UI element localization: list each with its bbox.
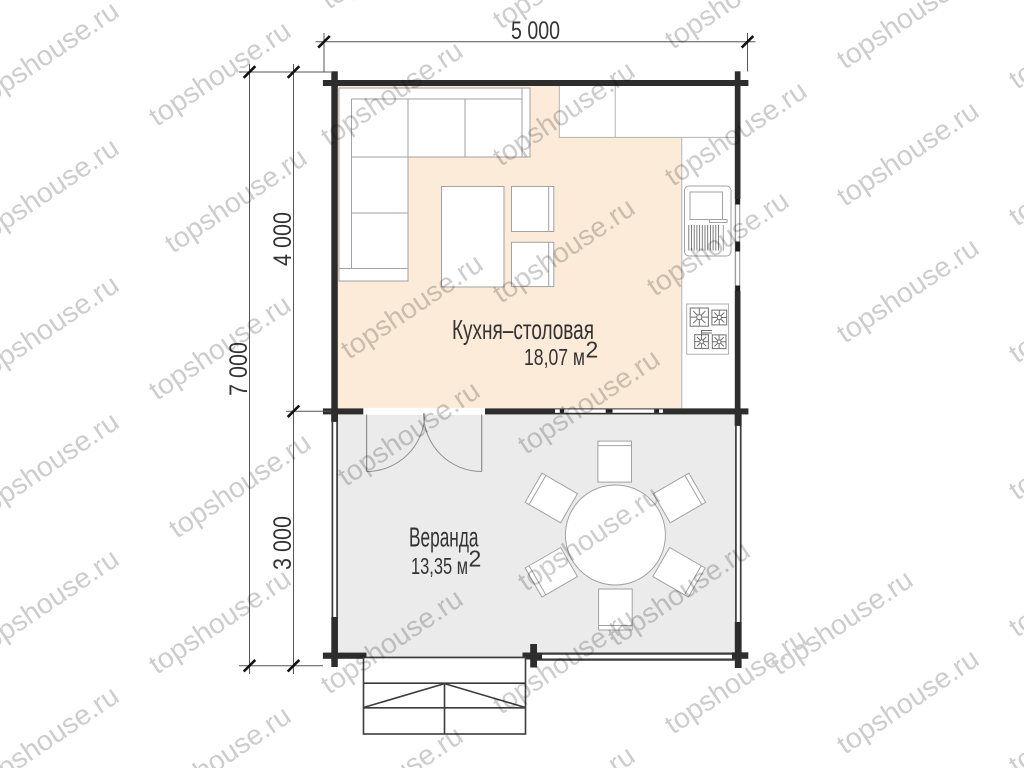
svg-text:13,35 м: 13,35 м xyxy=(411,553,468,579)
svg-text:3 000: 3 000 xyxy=(269,516,297,570)
svg-text:2: 2 xyxy=(469,546,482,572)
svg-text:4 000: 4 000 xyxy=(269,212,297,266)
svg-text:18,07 м: 18,07 м xyxy=(524,344,585,370)
svg-text:Кухня–столовая: Кухня–столовая xyxy=(452,314,594,345)
svg-text:2: 2 xyxy=(586,337,599,363)
